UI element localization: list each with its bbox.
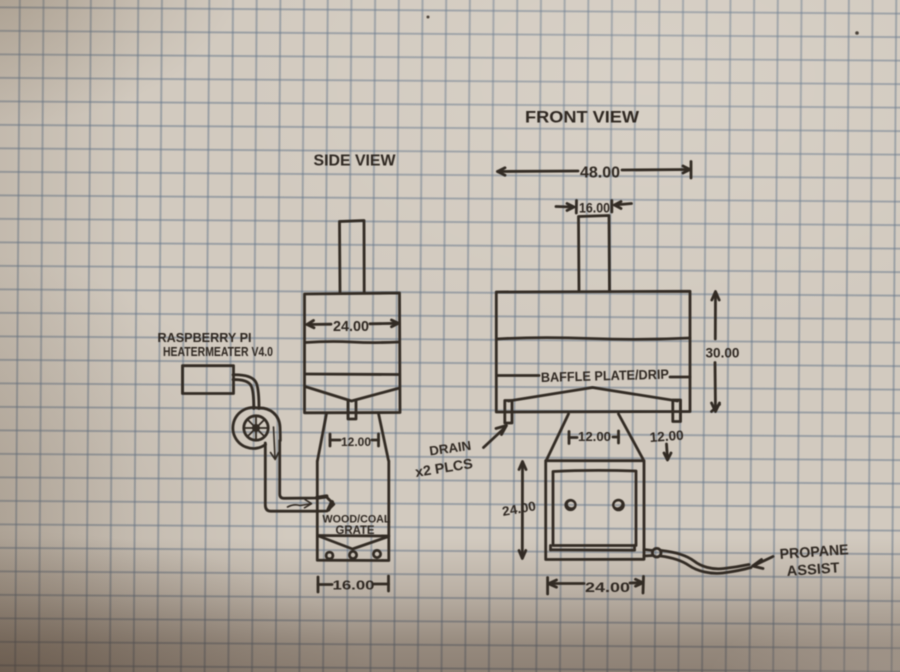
svg-text:GRATE: GRATE — [336, 525, 375, 537]
svg-text:16.00: 16.00 — [333, 578, 375, 593]
svg-text:12.00: 12.00 — [341, 435, 371, 449]
svg-text:SIDE VIEW: SIDE VIEW — [314, 153, 397, 170]
svg-text:48.00: 48.00 — [580, 165, 620, 182]
svg-text:HEATERMEATER V4.0: HEATERMEATER V4.0 — [163, 345, 273, 359]
svg-text:24.00: 24.00 — [585, 580, 630, 595]
svg-text:ASSIST: ASSIST — [786, 560, 840, 580]
svg-text:WOOD/COAL: WOOD/COAL — [323, 514, 391, 526]
svg-text:x2 PLCS: x2 PLCS — [414, 455, 474, 480]
svg-text:30.00: 30.00 — [706, 346, 740, 361]
svg-text:12.00: 12.00 — [649, 428, 684, 445]
svg-text:RASPBERRY PI: RASPBERRY PI — [158, 330, 252, 345]
svg-text:16.00: 16.00 — [579, 201, 610, 216]
svg-text:BAFFLE PLATE/DRIP: BAFFLE PLATE/DRIP — [541, 367, 669, 385]
svg-text:24.00: 24.00 — [501, 498, 537, 519]
svg-text:24.00: 24.00 — [333, 318, 369, 335]
svg-text:12.00: 12.00 — [578, 430, 611, 444]
svg-text:FRONT VIEW: FRONT VIEW — [525, 109, 639, 127]
